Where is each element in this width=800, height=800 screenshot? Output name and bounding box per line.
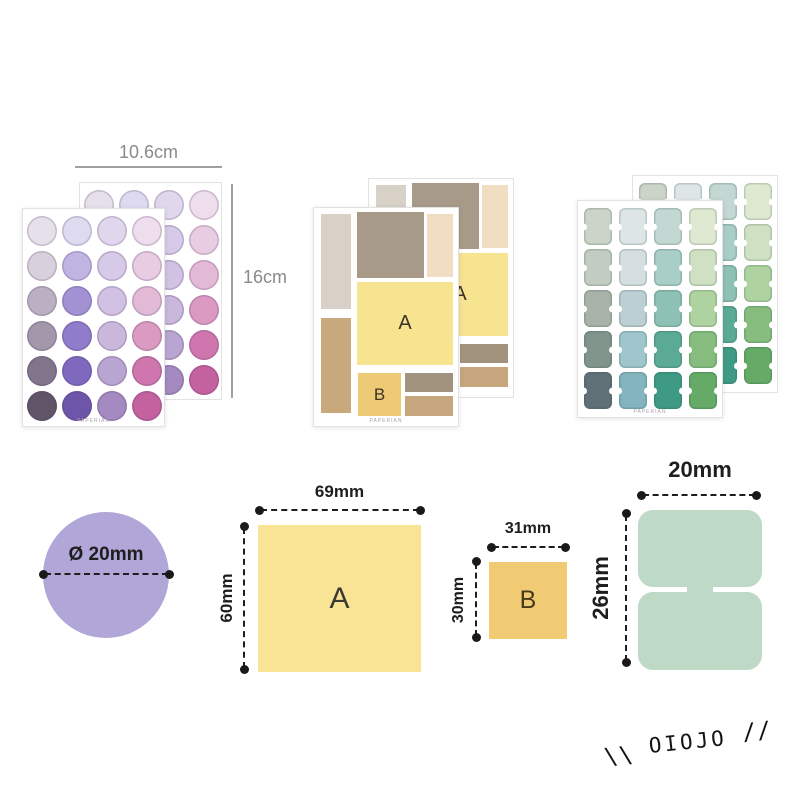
sticker-tab xyxy=(619,208,647,245)
tab-notch-left xyxy=(615,223,622,230)
sticker-tab xyxy=(619,290,647,327)
sticker-tab xyxy=(584,249,612,286)
sticker-circle xyxy=(189,190,219,220)
tab-notch-right xyxy=(769,362,776,369)
tab-notch-right xyxy=(714,223,721,230)
sticker-block-letter: A xyxy=(398,312,411,335)
sticker-circle xyxy=(97,391,127,421)
tab-notch-left xyxy=(615,264,622,271)
sticker-circle xyxy=(132,321,162,351)
tab-notch-left xyxy=(740,362,747,369)
sticker-b-letter: B xyxy=(520,586,537,615)
sticker-tab xyxy=(744,183,772,220)
sticker-b-width-label: 31mm xyxy=(489,520,567,538)
sticker-circle xyxy=(27,321,57,351)
sticker-a-width-label: 69mm xyxy=(258,482,421,502)
purple-sticker-sheet-front: PAPERIAN xyxy=(22,208,165,427)
sheet-width-label: 10.6cm xyxy=(75,142,222,163)
tab-notch-left xyxy=(580,223,587,230)
sticker-tab xyxy=(744,224,772,261)
tab-bottom-half xyxy=(638,592,762,670)
tab-notch-left xyxy=(685,264,692,271)
sticker-circle xyxy=(62,251,92,281)
tab-notch-left xyxy=(740,198,747,205)
sticker-circle xyxy=(62,286,92,316)
tab-notch-left xyxy=(685,346,692,353)
sticker-tab xyxy=(654,290,682,327)
tab-width-line xyxy=(643,494,755,496)
tab-notch-left xyxy=(580,346,587,353)
tab-notch-right xyxy=(769,198,776,205)
sticker-b-width-line xyxy=(493,546,564,548)
sticker-tab xyxy=(619,331,647,368)
brand-watermark-row: \\ OIOJO // xyxy=(602,713,775,771)
sticker-circle xyxy=(97,286,127,316)
sticker-circle xyxy=(132,251,162,281)
sticker-circle xyxy=(132,356,162,386)
tab-sticker-size-diagram xyxy=(638,510,762,670)
sticker-circle xyxy=(27,391,57,421)
tab-notch-left xyxy=(650,264,657,271)
sticker-tab xyxy=(689,249,717,286)
tab-width-label: 20mm xyxy=(638,457,762,483)
tab-notch-left xyxy=(650,305,657,312)
sticker-tab xyxy=(654,249,682,286)
tab-notch-left xyxy=(685,387,692,394)
sticker-circle xyxy=(132,391,162,421)
sticker-a-height-line xyxy=(243,528,245,668)
sticker-block-b: B xyxy=(358,373,401,416)
sticker-tab xyxy=(584,290,612,327)
sticker-block-tc xyxy=(357,212,424,278)
sticker-block-a: A xyxy=(357,282,453,365)
sticker-tab xyxy=(744,347,772,384)
sticker-tab xyxy=(654,208,682,245)
sticker-circle xyxy=(27,286,57,316)
tab-notch-left xyxy=(615,346,622,353)
tab-notch-left xyxy=(615,387,622,394)
tab-notch-left xyxy=(580,305,587,312)
tab-notch-left xyxy=(580,264,587,271)
watermark-right-slashes: // xyxy=(741,717,773,746)
sheet-height-label: 16cm xyxy=(243,267,287,288)
tab-height-label: 26mm xyxy=(588,556,614,620)
sticker-block-r2 xyxy=(405,396,453,416)
sticker-circle xyxy=(62,391,92,421)
sticker-tab xyxy=(689,208,717,245)
block-sticker-layout: AB xyxy=(314,208,458,426)
circle-sticker-size-diagram xyxy=(43,512,169,638)
circle-diameter-label: Ø 20mm xyxy=(43,544,169,566)
tab-center-bridge xyxy=(687,580,713,600)
sticker-circle xyxy=(97,216,127,246)
tab-notch-left xyxy=(650,346,657,353)
brand-watermark: \\ OIOJO // xyxy=(593,712,783,772)
sticker-circle xyxy=(97,251,127,281)
sheet-brand-text: PAPERIAN xyxy=(23,418,164,424)
watermark-left-slashes: \\ xyxy=(603,742,635,771)
sticker-circle xyxy=(97,321,127,351)
sticker-circle xyxy=(189,225,219,255)
sticker-b-size-diagram: B xyxy=(489,562,567,639)
sticker-circle xyxy=(189,260,219,290)
tab-notch-left xyxy=(650,387,657,394)
sticker-tab xyxy=(584,372,612,409)
tab-sticker-grid xyxy=(578,201,722,416)
tab-notch-left xyxy=(685,305,692,312)
tab-notch-left xyxy=(740,280,747,287)
sticker-circle xyxy=(189,330,219,360)
circle-diameter-line xyxy=(45,573,168,575)
sticker-a-height-label: 60mm xyxy=(217,573,237,622)
tab-notch-right xyxy=(714,264,721,271)
sticker-tab xyxy=(689,372,717,409)
tab-notch-right xyxy=(769,239,776,246)
sheet-brand-text: PAPERIAN xyxy=(314,418,458,424)
sticker-tab xyxy=(619,372,647,409)
tab-height-line xyxy=(625,515,627,661)
sticker-b-height-line xyxy=(475,563,477,636)
sticker-block-r2 xyxy=(460,367,508,387)
sticker-circle xyxy=(132,216,162,246)
sticker-block-tr xyxy=(482,185,508,248)
tab-notch-left xyxy=(740,321,747,328)
sticker-tab xyxy=(584,208,612,245)
sticker-circle xyxy=(97,356,127,386)
tab-top-half xyxy=(638,510,762,587)
sticker-tab xyxy=(654,331,682,368)
sticker-product-diagram: 10.6cm 16cm PAPERIAN PAPERIAN AB PAPERIA… xyxy=(0,0,800,800)
sticker-block-bl xyxy=(321,318,351,413)
sticker-circle xyxy=(27,251,57,281)
sticker-tab xyxy=(744,265,772,302)
sheet-brand-text: PAPERIAN xyxy=(578,409,722,415)
sticker-a-letter: A xyxy=(329,582,349,616)
sticker-tab xyxy=(654,372,682,409)
sticker-circle xyxy=(132,286,162,316)
sticker-circle xyxy=(62,356,92,386)
tab-notch-left xyxy=(580,387,587,394)
sheet-height-line xyxy=(231,184,233,398)
mixed-sticker-sheet-front: AB PAPERIAN xyxy=(313,207,459,427)
sticker-circle xyxy=(62,216,92,246)
sticker-block-r1 xyxy=(405,373,453,392)
tab-notch-left xyxy=(685,223,692,230)
sticker-tab xyxy=(744,306,772,343)
tab-notch-left xyxy=(615,305,622,312)
tab-notch-left xyxy=(650,223,657,230)
watermark-text: OIOJO xyxy=(648,726,728,758)
tab-notch-right xyxy=(714,387,721,394)
sticker-block-tr xyxy=(427,214,453,277)
sticker-a-width-line xyxy=(261,509,419,511)
green-sticker-sheet-front: PAPERIAN xyxy=(577,200,723,418)
tab-notch-right xyxy=(769,280,776,287)
tab-notch-left xyxy=(740,239,747,246)
circle-sticker-grid xyxy=(23,209,164,428)
sticker-tab xyxy=(689,331,717,368)
tab-notch-right xyxy=(714,305,721,312)
sticker-block-letter: B xyxy=(374,385,385,405)
sticker-block-r1 xyxy=(460,344,508,363)
sticker-b-height-label: 30mm xyxy=(450,577,468,623)
sticker-circle xyxy=(27,216,57,246)
sticker-block-tl xyxy=(321,214,351,309)
sticker-tab xyxy=(584,331,612,368)
tab-notch-right xyxy=(769,321,776,328)
sticker-a-size-diagram: A xyxy=(258,525,421,672)
sticker-circle xyxy=(62,321,92,351)
sticker-circle xyxy=(27,356,57,386)
tab-notch-right xyxy=(714,346,721,353)
sticker-circle xyxy=(189,295,219,325)
sticker-tab xyxy=(689,290,717,327)
sheet-width-line xyxy=(75,166,222,168)
sticker-tab xyxy=(619,249,647,286)
